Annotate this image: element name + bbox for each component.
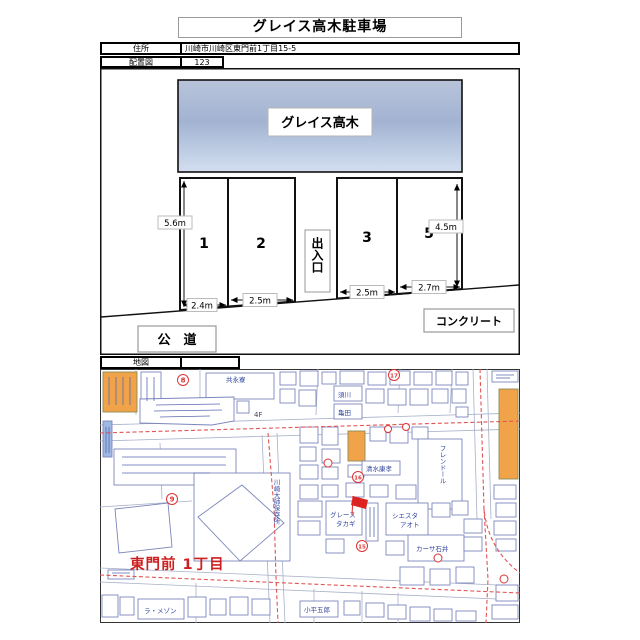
- label-kyoeiryo: 共永寮: [226, 375, 246, 384]
- space-3-number: 3: [362, 230, 372, 246]
- label-shimizu: 清水康孝: [366, 464, 393, 473]
- space-5-width-label: 2.7m: [418, 284, 440, 294]
- building-name-label: グレイス高木: [281, 115, 360, 131]
- entrance-label: 出入口: [310, 236, 324, 274]
- marker-17: 17: [390, 374, 398, 380]
- page-title: グレイス高木駐車場: [178, 17, 462, 38]
- address-label: 住所: [102, 44, 182, 53]
- address-value: 川崎市川崎区東門前1丁目15-5: [182, 44, 518, 53]
- district-label: 東門前 1丁目: [130, 555, 225, 573]
- label-kodaira: 小平五郎: [304, 605, 331, 614]
- label-daishi: 川崎大師保存所: [272, 479, 280, 526]
- label-casa: カーサ石井: [416, 544, 449, 553]
- depth-right-label: 4.5m: [435, 223, 457, 233]
- address-row: 住所 川崎市川崎区東門前1丁目15-5: [100, 42, 520, 55]
- layout-number: 123: [182, 58, 222, 66]
- space-3-width-label: 2.5m: [356, 289, 378, 299]
- layout-label: 配置図: [102, 58, 182, 66]
- marker-15: 15: [358, 545, 366, 551]
- label-friendl: フレンドール: [438, 445, 446, 484]
- space-1-number: 1: [199, 236, 209, 252]
- label-siesta-2: アオト: [400, 521, 420, 529]
- label-4f: 4F: [254, 411, 262, 419]
- space-1-width-label: 2.4m: [191, 302, 213, 312]
- space-2-width-label: 2.5m: [249, 297, 271, 307]
- map-label: 地図: [102, 358, 182, 367]
- document-sheet: グレイス高木駐車場 住所 川崎市川崎区東門前1丁目15-5 配置図 123 グレ…: [0, 0, 640, 640]
- concrete-label: コンクリート: [436, 315, 502, 328]
- site-layout-diagram: グレイス高木 1 2 3 5 5.6m 4.5m: [100, 68, 520, 355]
- depth-left-label: 5.6m: [164, 219, 186, 229]
- layout-row: 配置図 123: [100, 56, 224, 68]
- label-lamaison: ラ・メゾン: [144, 607, 177, 615]
- marker-8: 8: [181, 377, 186, 385]
- label-sugawa: 須川: [338, 390, 351, 399]
- label-kameda: 亀田: [338, 408, 351, 417]
- marker-9: 9: [170, 496, 175, 504]
- label-siesta-1: シエスタ: [392, 511, 418, 520]
- space-2-number: 2: [256, 236, 266, 252]
- area-map: 共永寮 須川 亀田 4F 川崎大師保存所 グレース タカギ シエスタ アオト カ…: [100, 369, 520, 623]
- label-grace-2: タカギ: [336, 519, 356, 528]
- map-row: 地図: [100, 356, 240, 369]
- marker-16: 16: [354, 476, 362, 482]
- public-road-label: 公 道: [157, 332, 196, 348]
- map-row-blank: [182, 358, 238, 367]
